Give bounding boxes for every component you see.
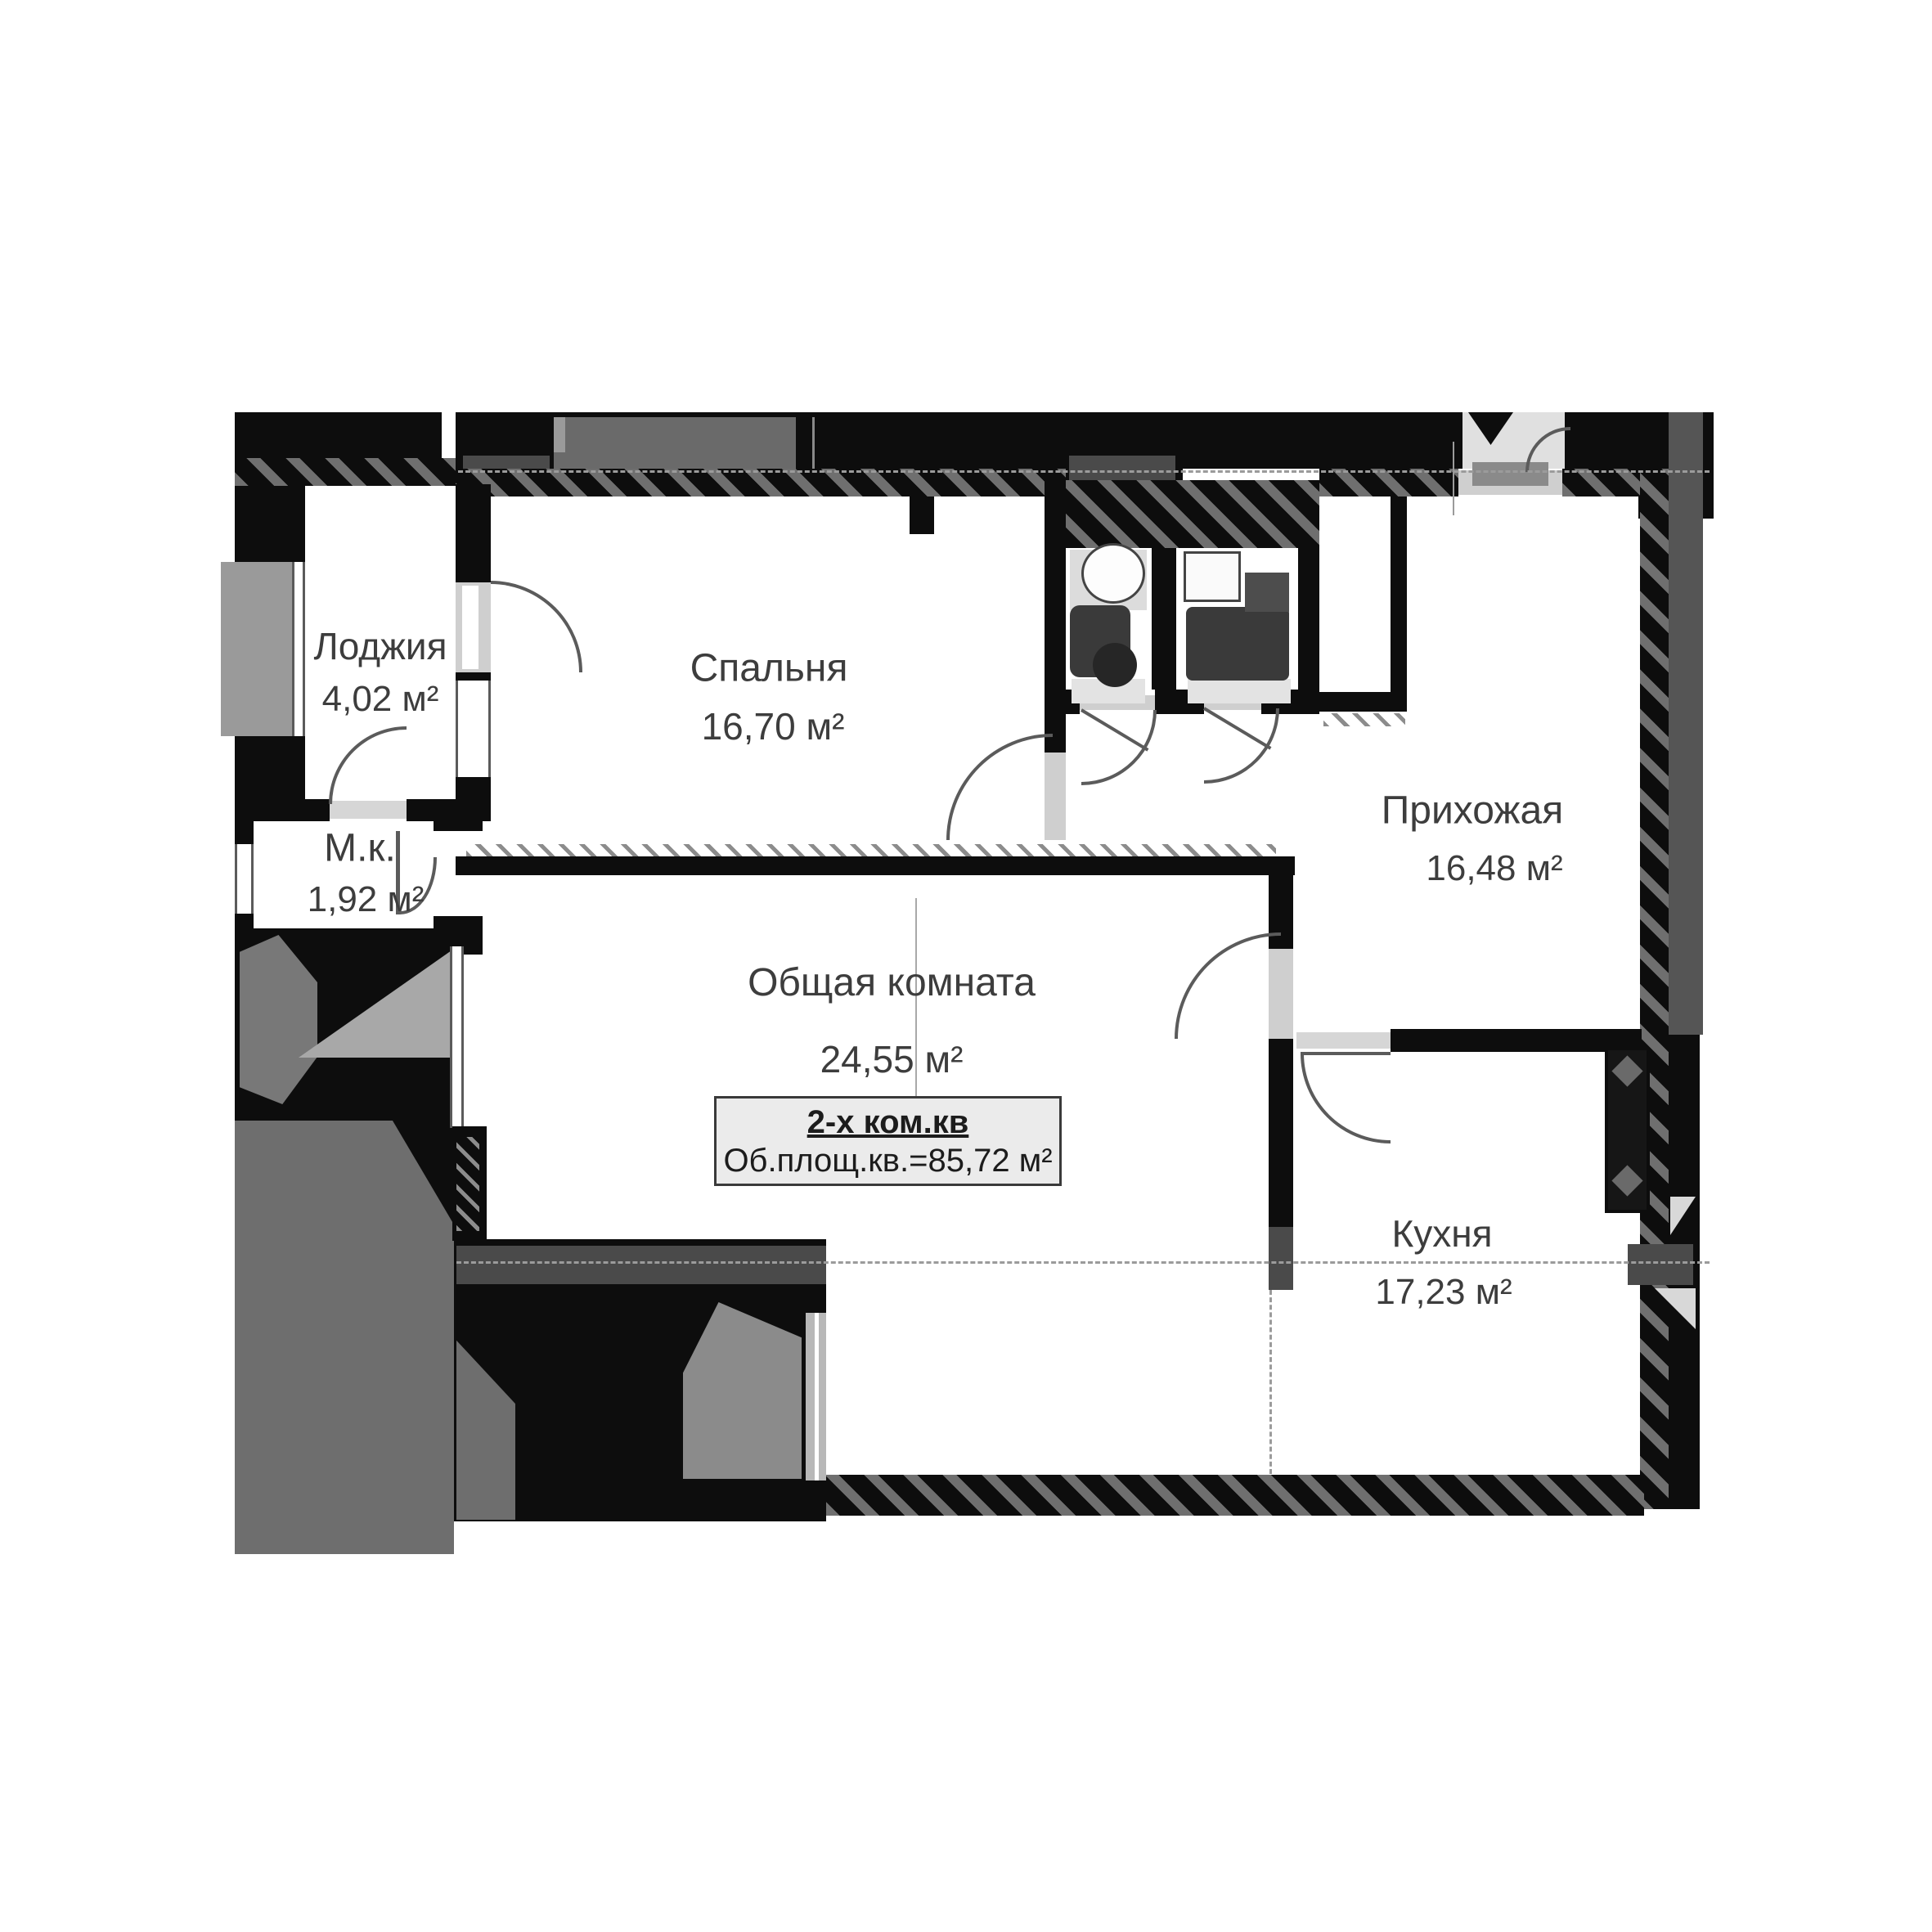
exterior-wall-hatched <box>1562 469 1642 496</box>
door-swing-arc <box>1301 1054 1391 1143</box>
wall <box>456 777 491 821</box>
door-threshold <box>462 586 479 669</box>
room-area-living-room: 24,55 м² <box>820 1037 964 1081</box>
wall <box>1152 548 1176 690</box>
bedroom-window-band <box>554 417 796 469</box>
room-label-small-room: М.к. <box>324 826 396 871</box>
door-swing-arc <box>491 581 582 672</box>
axis-tick <box>812 417 815 470</box>
room-label-living-room: Общая комната <box>736 955 1047 1012</box>
small-room-window <box>235 844 254 914</box>
wall-hatch-band <box>466 844 1276 856</box>
room-label-kitchen: Кухня <box>1391 1211 1492 1256</box>
wall <box>456 672 491 681</box>
sink-icon <box>1184 551 1241 602</box>
wall-hatch-band <box>1323 713 1405 726</box>
door-threshold <box>1296 1032 1391 1049</box>
axis-line <box>458 470 1710 473</box>
wall-band <box>456 1246 826 1284</box>
exterior-wall-hatched <box>1047 480 1319 548</box>
wall <box>1045 480 1066 753</box>
floor-plan: Лоджия 4,02 м² Спальня 16,70 м² М.к. 1,9… <box>0 0 1932 1932</box>
wall-hatch-band <box>456 1137 479 1231</box>
door-swing-arc <box>329 726 407 804</box>
door-swing-arc <box>946 734 1053 840</box>
wall <box>1298 548 1319 690</box>
door-leaf <box>1301 1052 1391 1055</box>
room-area-small-room: 1,92 м² <box>308 879 425 920</box>
corridor-wall <box>1565 412 1642 469</box>
apartment-total-area: Об.площ.кв.=85,72 м² <box>717 1143 1059 1179</box>
wall <box>1269 1039 1293 1227</box>
wall <box>235 799 330 821</box>
exterior-wall-hatched <box>235 458 456 486</box>
room-label-loggia: Лоджия <box>314 624 447 668</box>
room-label-bedroom: Спальня <box>690 646 848 691</box>
living-room-window <box>450 946 464 1128</box>
room-area-loggia: 4,02 м² <box>322 679 439 720</box>
washing-machine-icon <box>1186 607 1289 681</box>
exterior-glazing-line <box>815 1313 819 1480</box>
bath-fixture-icon <box>1245 573 1289 612</box>
wall <box>456 856 1295 875</box>
wall <box>456 1239 826 1246</box>
room-label-hallway: Прихожая <box>1382 789 1563 833</box>
wall <box>1269 1227 1293 1290</box>
exterior-strip <box>1669 412 1703 1035</box>
dimension-line <box>1453 442 1454 515</box>
wall <box>235 736 305 806</box>
loggia-window <box>292 562 305 736</box>
room-area-hallway: 16,48 м² <box>1426 848 1562 889</box>
wall <box>456 484 491 582</box>
corridor-wall <box>1183 412 1462 469</box>
door-swing-arc <box>1175 932 1281 1039</box>
wall <box>1391 1029 1642 1052</box>
exterior-shape <box>235 1121 454 1554</box>
exterior-wall-hatched <box>1640 469 1669 1509</box>
apartment-type: 2-х ком.кв <box>717 1104 1059 1141</box>
room-area-kitchen: 17,23 м² <box>1375 1272 1512 1313</box>
wall <box>1391 496 1407 695</box>
loggia-bedroom-window <box>456 681 491 777</box>
wall <box>235 821 254 844</box>
exterior-wall-hatched <box>456 469 1066 496</box>
bath-floor <box>1188 679 1291 703</box>
wall-axis-block <box>1628 1244 1693 1285</box>
exterior-wall-hatched <box>1319 469 1458 496</box>
wall <box>1319 692 1407 712</box>
wall-stub <box>910 496 934 534</box>
room-area-bedroom: 16,70 м² <box>702 704 845 748</box>
exterior-wall-hatched <box>826 1475 1644 1516</box>
bedroom-window-band-end <box>554 417 565 452</box>
wall <box>434 821 483 831</box>
washbasin-icon <box>1081 543 1145 604</box>
axis-line <box>456 1261 1710 1264</box>
info-box: 2-х ком.кв Об.площ.кв.=85,72 м² <box>714 1096 1062 1186</box>
toilet-seat-icon <box>1093 643 1137 687</box>
wall <box>456 1284 826 1291</box>
axis-line <box>1269 1290 1272 1474</box>
exterior-strip <box>221 562 292 736</box>
wall <box>407 799 456 821</box>
